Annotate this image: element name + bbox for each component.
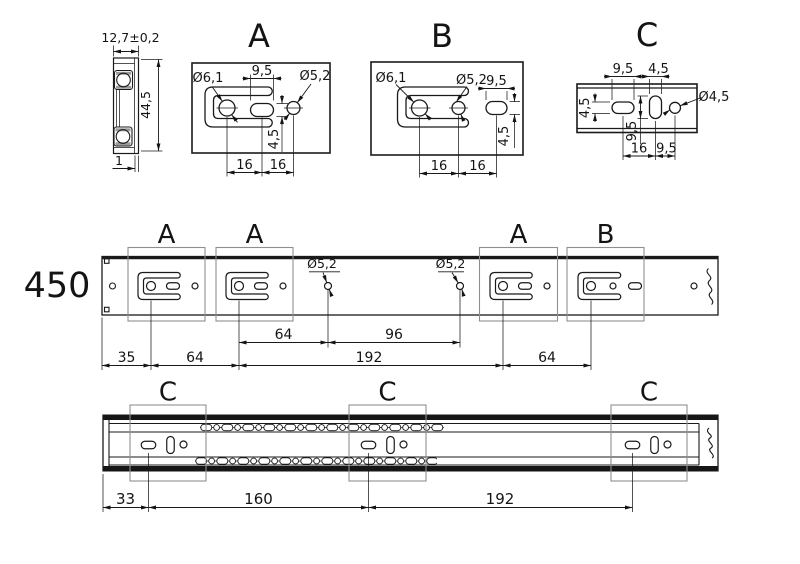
leader-tail bbox=[462, 289, 464, 295]
leader-tail bbox=[665, 110, 670, 114]
end-hole-right bbox=[691, 283, 697, 289]
pitch2-dim: 16 bbox=[270, 158, 287, 173]
slot-width-dim: 9,5 bbox=[486, 74, 507, 89]
hole-callout-2: Ø5,2 bbox=[436, 256, 466, 271]
slot-width-dim: 9,5 bbox=[252, 64, 273, 79]
v-slot-height-dim: 9,5 bbox=[625, 121, 640, 142]
lower-dim-35: 35 bbox=[118, 350, 136, 366]
end-tab bbox=[105, 259, 110, 264]
upper-dim-64: 64 bbox=[275, 327, 293, 343]
dim-33: 33 bbox=[116, 490, 135, 508]
section-width-dim: 12,7±0,2 bbox=[101, 30, 159, 45]
ball-bearing-top bbox=[117, 73, 131, 87]
hole-pattern-a2 bbox=[226, 273, 286, 300]
leader-tail bbox=[329, 289, 331, 295]
h-oval-slot bbox=[612, 102, 634, 114]
hole-pattern-a1 bbox=[138, 273, 198, 300]
lower-dim-192: 192 bbox=[356, 350, 383, 366]
rail-body bbox=[102, 257, 718, 316]
ball-bearing-bottom bbox=[116, 130, 130, 144]
hole-pattern-b bbox=[578, 273, 642, 300]
lower-dim-64: 64 bbox=[186, 350, 204, 366]
top-rail-view: 450 A A A B Ø5,2 Ø5,2 bbox=[24, 220, 719, 370]
hole-pattern-c2 bbox=[361, 437, 407, 454]
detail-b: B Ø6,1 Ø5,2 9,5 4,5 16 16 bbox=[371, 17, 523, 178]
outer-flange-bottom bbox=[103, 466, 718, 472]
leader-line bbox=[323, 273, 327, 283]
hook-hole-callout: Ø6,1 bbox=[193, 71, 224, 86]
round-hole bbox=[670, 102, 681, 113]
dim-192: 192 bbox=[486, 490, 515, 508]
leader-line bbox=[456, 87, 467, 102]
oval-slot bbox=[251, 104, 274, 117]
h-slot-width-dim: 9,5 bbox=[613, 62, 634, 77]
break-line bbox=[707, 428, 713, 458]
pitch1-dim: 16 bbox=[431, 159, 448, 174]
detail-a-title: A bbox=[248, 17, 270, 55]
pitch2-dim: 9,5 bbox=[656, 142, 677, 157]
hole-pattern-a3 bbox=[490, 273, 550, 300]
slot-height-dim: 4,5 bbox=[267, 129, 282, 150]
hook-slot bbox=[398, 87, 469, 127]
pattern-label-c3: C bbox=[640, 378, 658, 408]
hole-callout-1: Ø5,2 bbox=[307, 256, 337, 271]
bottom-rail-view: C C C 33 160 192 bbox=[103, 378, 718, 513]
detail-c-title: C bbox=[636, 16, 658, 54]
leader-line bbox=[297, 84, 311, 103]
ball-retainer-bottom bbox=[195, 457, 437, 466]
upper-dim-96: 96 bbox=[385, 327, 403, 343]
h-slot-height-dim: 4,5 bbox=[578, 97, 593, 118]
lower-dim-64b: 64 bbox=[538, 350, 556, 366]
hole-callout: Ø4,5 bbox=[699, 90, 730, 105]
hole-pattern-c1 bbox=[141, 437, 187, 454]
pattern-label-a2: A bbox=[246, 220, 264, 250]
hook-hole-callout: Ø6,1 bbox=[376, 71, 407, 86]
ball-retainer-top bbox=[200, 423, 444, 432]
pattern-label-c2: C bbox=[378, 378, 396, 408]
leader-tail bbox=[461, 114, 464, 120]
mid-hole-2 bbox=[457, 283, 464, 290]
section-thickness-dim: 1 bbox=[115, 153, 123, 168]
mid-hole-1 bbox=[325, 283, 332, 290]
pitch1-dim: 16 bbox=[631, 142, 648, 157]
rail-length-label: 450 bbox=[24, 266, 91, 306]
pitch1-dim: 16 bbox=[236, 158, 253, 173]
drawing-sheet: 12,7±0,2 44,5 1 A Ø6 bbox=[0, 0, 800, 564]
pattern-label-c1: C bbox=[159, 378, 177, 408]
cross-section-view: 12,7±0,2 44,5 1 bbox=[101, 30, 162, 172]
oval-slot bbox=[486, 102, 507, 115]
pattern-label-a1: A bbox=[158, 220, 176, 250]
detail-c: C 9,5 4,5 4,5 9,5 Ø4,5 bbox=[577, 16, 729, 160]
round-hole-callout: Ø5,2 bbox=[300, 69, 331, 84]
section-height-dim: 44,5 bbox=[138, 91, 153, 119]
dim-160: 160 bbox=[244, 490, 273, 508]
v-oval-slot bbox=[650, 96, 662, 119]
detail-a: A Ø6,1 Ø5,2 9,5 4,5 16 16 bbox=[192, 17, 330, 177]
slot-height-dim: 4,5 bbox=[497, 126, 512, 147]
pattern-label-a3: A bbox=[510, 220, 528, 250]
end-hole bbox=[110, 283, 116, 289]
leader-line bbox=[452, 273, 458, 284]
break-line bbox=[707, 269, 713, 305]
outer-flange-top bbox=[103, 415, 718, 421]
detail-b-title: B bbox=[431, 17, 453, 55]
v-slot-width-dim: 4,5 bbox=[648, 62, 669, 77]
hole-pattern-c3 bbox=[625, 437, 671, 454]
round-hole-callout: Ø5,2 bbox=[456, 73, 487, 88]
pattern-label-b: B bbox=[597, 220, 615, 250]
end-tab bbox=[105, 307, 110, 312]
pitch2-dim: 16 bbox=[469, 159, 486, 174]
